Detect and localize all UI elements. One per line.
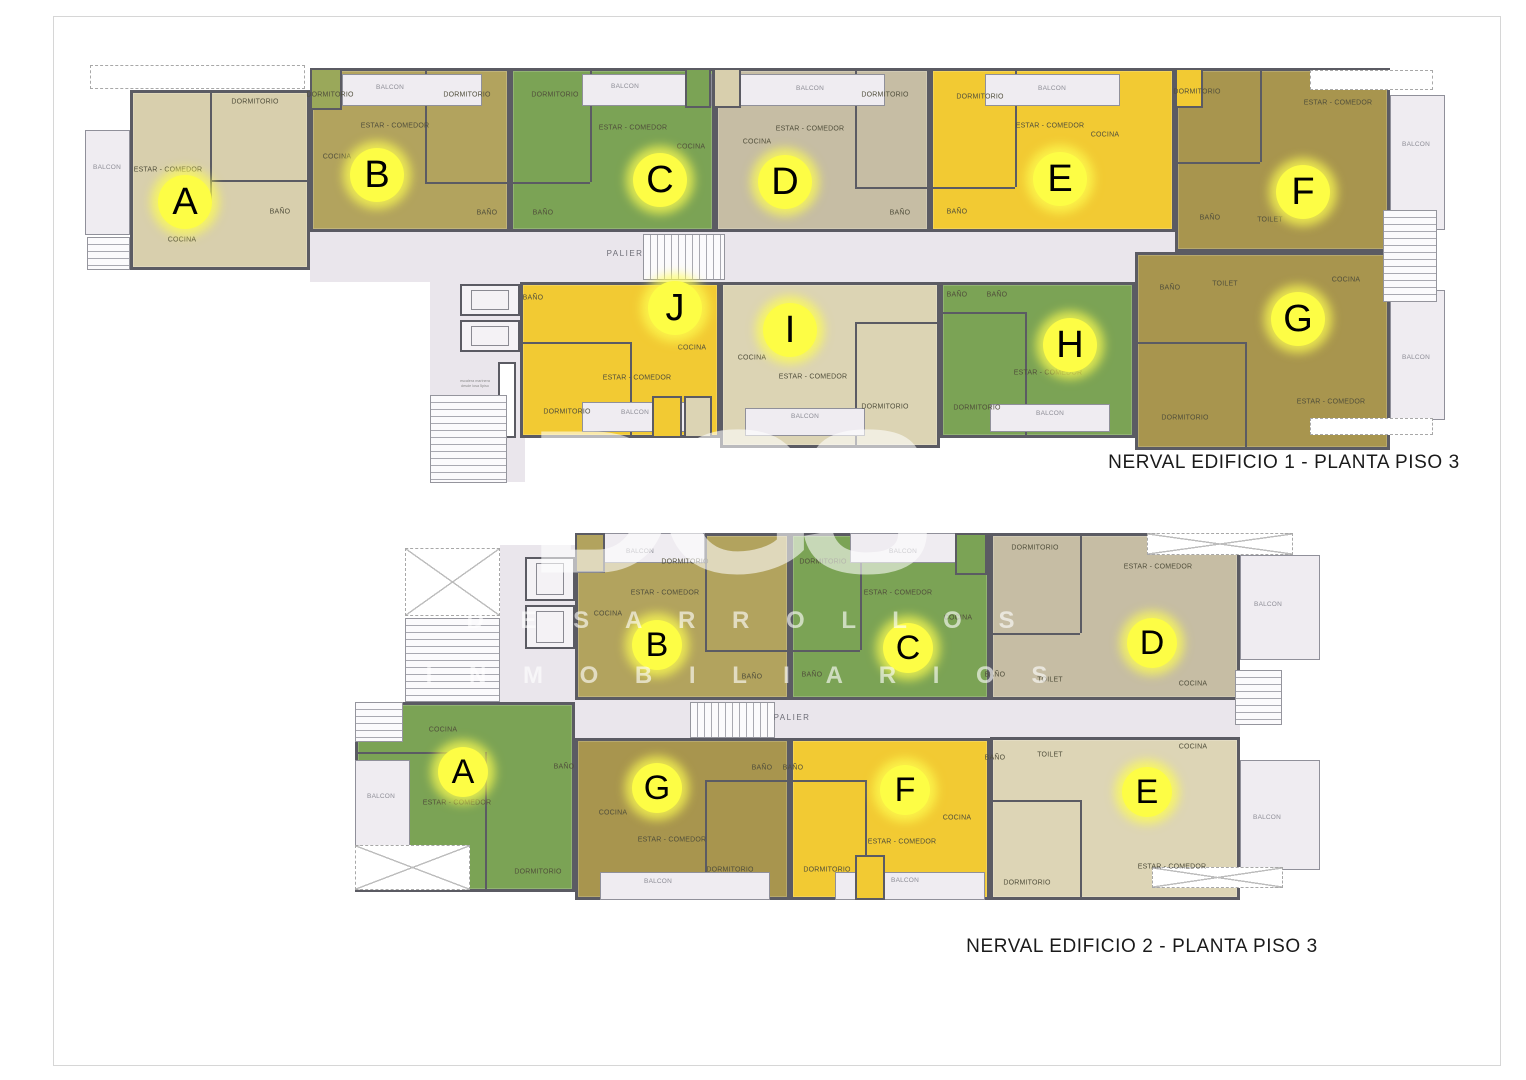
unit-badge-d[interactable]: D: [758, 155, 812, 209]
room-label-cocina: COCINA: [743, 139, 771, 146]
room-label-estar-comedor: ESTAR - COMEDOR: [134, 167, 203, 174]
room-label-ba-o: BAÑO: [802, 672, 823, 679]
balcony-area: [990, 404, 1110, 432]
room-label-estar-comedor: ESTAR - COMEDOR: [1138, 864, 1207, 871]
corridor-label: PALIER: [607, 250, 644, 258]
unit-letter: A: [452, 753, 475, 792]
unit-badge-i[interactable]: I: [763, 303, 817, 357]
balcony-label: BALCON: [93, 165, 121, 172]
stairs: [430, 395, 507, 483]
interior-wall: [1080, 800, 1082, 900]
unit-badge-a[interactable]: A: [438, 747, 488, 797]
corridor-label: PALIER: [774, 714, 811, 722]
corridor-palier: [575, 700, 1240, 738]
unit-letter: B: [364, 154, 389, 197]
stair-tower: [855, 855, 885, 900]
room-label-estar-comedor: ESTAR - COMEDOR: [1016, 123, 1085, 130]
room-label-ba-o: BAÑO: [987, 292, 1008, 299]
balcony-label: BALCON: [1402, 142, 1430, 149]
balcony-label: BALCON: [891, 878, 919, 885]
balcony-label: BALCON: [796, 86, 824, 93]
stair-tower: [310, 68, 342, 110]
room-label-ba-o: BAÑO: [947, 292, 968, 299]
unit-letter: A: [172, 181, 197, 224]
unit-letter: B: [646, 626, 669, 665]
interior-wall: [855, 187, 930, 189]
room-label-cocina: COCINA: [594, 611, 622, 618]
interior-wall: [210, 180, 310, 182]
interior-wall: [1080, 533, 1082, 633]
room-label-dormitorio: DORMITORIO: [543, 409, 590, 416]
stairs: [643, 234, 725, 280]
room-label-dormitorio: DORMITORIO: [861, 92, 908, 99]
unit-badge-h[interactable]: H: [1043, 318, 1097, 372]
room-label-estar-comedor: ESTAR - COMEDOR: [864, 590, 933, 597]
unit-badge-g[interactable]: G: [1271, 292, 1325, 346]
room-label-ba-o: BAÑO: [890, 210, 911, 217]
room-label-dormitorio: DORMITORIO: [231, 99, 278, 106]
room-label-estar-comedor: ESTAR - COMEDOR: [1297, 399, 1366, 406]
room-label-ba-o: BAÑO: [985, 755, 1006, 762]
unit-badge-f[interactable]: F: [1276, 165, 1330, 219]
interior-wall: [990, 800, 1080, 802]
room-label-cocina: COCINA: [678, 345, 706, 352]
elevator-shaft: [460, 320, 520, 352]
room-label-dormitorio: DORMITORIO: [531, 92, 578, 99]
unit-letter: J: [666, 287, 685, 330]
room-label-dormitorio: DORMITORIO: [706, 867, 753, 874]
stair-tower: [955, 533, 987, 575]
room-label-dormitorio: DORMITORIO: [661, 559, 708, 566]
room-label-dormitorio: DORMITORIO: [1003, 880, 1050, 887]
room-label-dormitorio: DORMITORIO: [1011, 545, 1058, 552]
terrace-outline: [355, 845, 470, 890]
room-label-dormitorio: DORMITORIO: [803, 867, 850, 874]
unit-badge-j[interactable]: J: [648, 281, 702, 335]
apartment-unit-f[interactable]: [1175, 68, 1390, 252]
room-label-dormitorio: DORMITORIO: [306, 92, 353, 99]
room-label-ba-o: BAÑO: [477, 210, 498, 217]
apartment-unit-d[interactable]: [990, 533, 1240, 700]
room-label-ba-o: BAÑO: [783, 765, 804, 772]
room-label-ba-o: BAÑO: [1200, 215, 1221, 222]
unit-badge-a[interactable]: A: [158, 175, 212, 229]
interior-wall: [520, 342, 630, 344]
stair-tower: [652, 396, 682, 438]
unit-badge-c[interactable]: C: [883, 623, 933, 673]
stair-tower: [684, 396, 712, 438]
stairs: [405, 618, 500, 702]
room-label-dormitorio: DORMITORIO: [953, 405, 1000, 412]
elevator-shaft: [460, 284, 520, 316]
room-label-cocina: COCINA: [1179, 681, 1207, 688]
interior-wall: [1260, 68, 1262, 162]
balcony-label: BALCON: [644, 879, 672, 886]
room-label-cocina: COCINA: [168, 237, 196, 244]
unit-badge-b[interactable]: B: [350, 148, 404, 202]
room-label-ba-o: BAÑO: [523, 295, 544, 302]
room-label-dormitorio: DORMITORIO: [956, 94, 1003, 101]
interior-wall: [1135, 342, 1245, 344]
balcony-label: BALCON: [889, 549, 917, 556]
room-label-cocina: COCINA: [943, 815, 971, 822]
interior-wall: [990, 633, 1080, 635]
unit-badge-e[interactable]: E: [1122, 767, 1172, 817]
unit-badge-g[interactable]: G: [632, 763, 682, 813]
balcony-label: BALCON: [791, 414, 819, 421]
balcony-label: BALCON: [376, 85, 404, 92]
interior-wall: [940, 312, 1025, 314]
room-label-cocina: COCINA: [1332, 277, 1360, 284]
interior-wall: [425, 182, 510, 184]
interior-wall: [790, 650, 860, 652]
unit-letter: H: [1056, 324, 1083, 367]
room-label-estar-comedor: ESTAR - COMEDOR: [779, 374, 848, 381]
room-label-cocina: COCINA: [1091, 132, 1119, 139]
stairs: [355, 702, 403, 742]
interior-wall: [930, 187, 1015, 189]
stair-note: escalera marineradesde losa 5piso: [460, 379, 490, 389]
unit-letter: D: [1140, 624, 1165, 663]
balcony-label: BALCON: [1402, 355, 1430, 362]
room-label-estar-comedor: ESTAR - COMEDOR: [1304, 100, 1373, 107]
interior-wall: [705, 533, 707, 650]
stairs: [1383, 210, 1437, 302]
room-label-ba-o: BAÑO: [985, 672, 1006, 679]
elevator-shaft: [525, 557, 575, 601]
terrace-outline: [1310, 418, 1433, 435]
balcony-label: BALCON: [1036, 411, 1064, 418]
unit-letter: E: [1047, 158, 1072, 201]
interior-wall: [510, 182, 590, 184]
room-label-ba-o: BAÑO: [752, 765, 773, 772]
room-label-toilet: TOILET: [1037, 677, 1063, 684]
room-label-cocina: COCINA: [429, 727, 457, 734]
room-label-ba-o: BAÑO: [270, 209, 291, 216]
unit-letter: C: [646, 159, 673, 202]
room-label-dormitorio: DORMITORIO: [799, 559, 846, 566]
room-label-cocina: COCINA: [323, 154, 351, 161]
unit-letter: C: [896, 629, 921, 668]
balcony-area: [342, 74, 482, 106]
balcony-area: [600, 872, 770, 900]
unit-letter: G: [644, 769, 670, 808]
unit-badge-e[interactable]: E: [1033, 152, 1087, 206]
floor-plan-sheet: BALCONBALCONBALCONBALCONBALCONBALCONBALC…: [0, 0, 1526, 1080]
interior-wall: [210, 90, 212, 202]
edificio-2-plan: BALCONBALCONBALCONBALCONBALCONBALCONBALC…: [355, 530, 1320, 920]
room-label-dormitorio: DORMITORIO: [1173, 89, 1220, 96]
room-label-cocina: COCINA: [599, 810, 627, 817]
room-label-dormitorio: DORMITORIO: [514, 869, 561, 876]
interior-wall: [855, 322, 940, 324]
room-label-ba-o: BAÑO: [742, 674, 763, 681]
room-label-toilet: TOILET: [1037, 752, 1063, 759]
unit-letter: F: [1291, 171, 1314, 214]
plan-title-edificio-2: NERVAL EDIFICIO 2 - PLANTA PISO 3: [966, 936, 1318, 958]
unit-letter: E: [1136, 773, 1159, 812]
plan-title-edificio-1: NERVAL EDIFICIO 1 - PLANTA PISO 3: [1108, 452, 1460, 474]
stairs: [690, 702, 775, 738]
edificio-1-plan: BALCONBALCONBALCONBALCONBALCONBALCONBALC…: [85, 62, 1445, 482]
room-label-estar-comedor: ESTAR - COMEDOR: [776, 126, 845, 133]
interior-wall: [705, 650, 790, 652]
room-label-cocina: COCINA: [677, 144, 705, 151]
unit-letter: G: [1283, 298, 1313, 341]
unit-letter: F: [895, 771, 916, 810]
balcony-label: BALCON: [367, 794, 395, 801]
terrace-outline: [405, 548, 500, 616]
interior-wall: [1245, 342, 1247, 450]
room-label-ba-o: BAÑO: [1160, 285, 1181, 292]
room-label-estar-comedor: ESTAR - COMEDOR: [1124, 564, 1193, 571]
stairs: [1235, 670, 1282, 725]
balcony-label: BALCON: [1254, 602, 1282, 609]
balcony-label: BALCON: [621, 410, 649, 417]
interior-wall: [1175, 162, 1260, 164]
room-label-toilet: TOILET: [1257, 217, 1283, 224]
room-label-estar-comedor: ESTAR - COMEDOR: [631, 590, 700, 597]
stair-tower: [713, 68, 741, 108]
stairs: [87, 237, 130, 270]
balcony-label: BALCON: [1038, 86, 1066, 93]
room-label-ba-o: BAÑO: [554, 764, 575, 771]
terrace-outline: [90, 65, 305, 89]
stair-tower: [685, 68, 711, 108]
room-label-cocina: COCINA: [738, 355, 766, 362]
room-label-estar-comedor: ESTAR - COMEDOR: [638, 837, 707, 844]
balcony-label: BALCON: [611, 84, 639, 91]
room-label-estar-comedor: ESTAR - COMEDOR: [361, 123, 430, 130]
room-label-cocina: COCINA: [1179, 744, 1207, 751]
room-label-estar-comedor: ESTAR - COMEDOR: [599, 125, 668, 132]
room-label-estar-comedor: ESTAR - COMEDOR: [423, 800, 492, 807]
balcony-area: [85, 130, 130, 235]
interior-wall: [705, 780, 790, 782]
stair-tower: [575, 533, 605, 573]
unit-badge-b[interactable]: B: [632, 620, 682, 670]
room-label-toilet: TOILET: [1212, 281, 1238, 288]
unit-letter: I: [785, 309, 796, 352]
unit-badge-d[interactable]: D: [1127, 618, 1177, 668]
interior-wall: [790, 780, 865, 782]
unit-letter: D: [771, 161, 798, 204]
terrace-outline: [1310, 70, 1433, 90]
room-label-ba-o: BAÑO: [533, 210, 554, 217]
terrace-outline: [1147, 533, 1293, 555]
balcony-label: BALCON: [626, 549, 654, 556]
unit-badge-c[interactable]: C: [633, 153, 687, 207]
room-label-cocina: COCINA: [944, 615, 972, 622]
room-label-dormitorio: DORMITORIO: [861, 404, 908, 411]
room-label-dormitorio: DORMITORIO: [1161, 415, 1208, 422]
elevator-shaft: [525, 605, 575, 649]
balcony-label: BALCON: [1253, 815, 1281, 822]
room-label-estar-comedor: ESTAR - COMEDOR: [868, 839, 937, 846]
room-label-dormitorio: DORMITORIO: [443, 92, 490, 99]
unit-badge-f[interactable]: F: [880, 765, 930, 815]
room-label-ba-o: BAÑO: [947, 209, 968, 216]
room-label-estar-comedor: ESTAR - COMEDOR: [603, 375, 672, 382]
